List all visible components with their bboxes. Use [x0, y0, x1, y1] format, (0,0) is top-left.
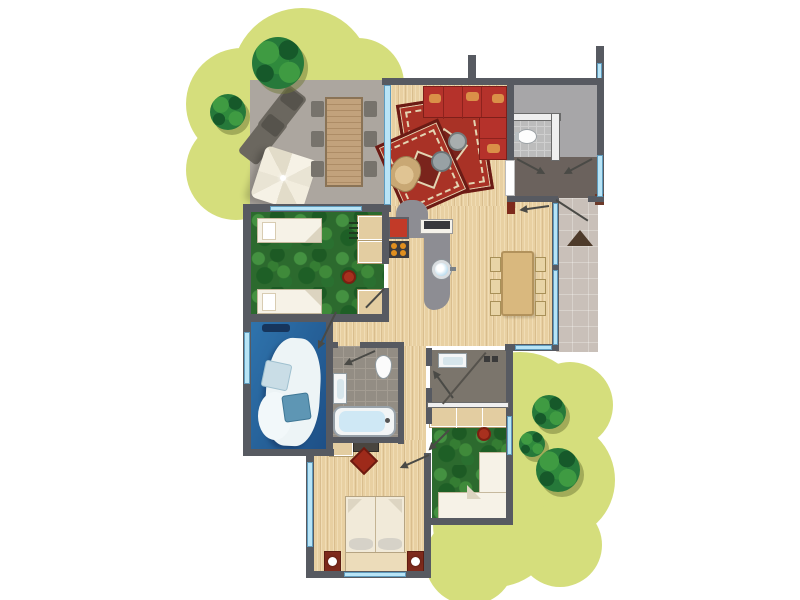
window	[553, 203, 558, 265]
sofa-seam	[462, 87, 463, 119]
wall-bathroom2-south	[428, 403, 508, 407]
window	[553, 270, 558, 345]
kitchen-dark-bar	[424, 221, 450, 229]
garden-chair	[364, 101, 377, 117]
duvet-fold	[388, 499, 402, 513]
dining-chair	[490, 279, 501, 294]
sofa-cushion-highlight	[492, 94, 504, 103]
tree	[210, 94, 246, 130]
round-side-table	[448, 132, 467, 151]
kitchen-sink	[431, 259, 452, 280]
duvet-fold	[305, 290, 321, 306]
wall-bathroom2-west	[426, 348, 432, 366]
lamp	[411, 557, 420, 566]
bathtub	[333, 406, 396, 437]
burner	[391, 250, 397, 256]
wall-bedroom1-east	[382, 288, 389, 321]
single-bed	[257, 218, 322, 243]
pillow	[262, 222, 276, 240]
wall-hall-west	[507, 83, 514, 161]
burner	[391, 243, 397, 249]
red-stool	[342, 270, 356, 284]
dining-chair	[535, 279, 546, 294]
sofa-cushion-highlight	[429, 94, 441, 103]
basin-bowl	[337, 379, 344, 399]
window	[244, 332, 250, 384]
wall-bedroom1-south	[243, 314, 389, 322]
wall-hall-south	[507, 196, 558, 202]
wall-bathroom1-east	[398, 342, 404, 444]
burner	[400, 243, 406, 249]
toilet-tank	[515, 132, 519, 141]
sofa-main	[423, 86, 507, 118]
garden-blob	[518, 503, 602, 587]
wall-top	[382, 78, 604, 85]
window	[270, 206, 362, 211]
pillow	[378, 538, 402, 550]
window-terrace-doors	[384, 85, 391, 205]
window	[597, 155, 603, 197]
shower-control	[492, 356, 498, 362]
kitchen-red-appliance	[388, 217, 409, 239]
window	[515, 345, 552, 350]
sofa-cushion-highlight	[487, 144, 500, 153]
window	[597, 63, 602, 79]
headboard	[262, 324, 290, 332]
window	[307, 462, 313, 547]
sink-bowl	[435, 263, 448, 276]
floor-plan-canvas	[0, 0, 800, 600]
round-side-table	[431, 151, 452, 172]
bathtub-drain	[385, 418, 390, 423]
wardrobe-row	[430, 406, 508, 427]
wardrobe-divider	[456, 407, 457, 428]
dining-chair	[535, 301, 546, 316]
tree	[252, 37, 304, 89]
parasol-pole	[280, 175, 286, 181]
wardrobe-divider	[482, 407, 483, 428]
dining-chair	[535, 257, 546, 272]
door-opening	[505, 160, 515, 196]
garden-chair	[311, 161, 324, 177]
burner	[400, 250, 406, 256]
window	[507, 416, 512, 455]
wall-bedroom1-east	[382, 204, 389, 264]
wall-stub	[468, 55, 476, 79]
entrance-marker-triangle	[567, 230, 593, 246]
garden-chair	[311, 131, 324, 147]
corner-bed-horizontal	[438, 492, 510, 521]
shower-head	[484, 356, 490, 362]
wall-bedroom4-east	[424, 453, 431, 578]
ladder	[349, 222, 358, 242]
washbasin	[333, 373, 347, 404]
wall-bedroom2-south	[243, 449, 334, 456]
window	[344, 572, 406, 577]
hob	[388, 241, 409, 258]
garden-chair	[364, 161, 377, 177]
garden-chair	[311, 101, 324, 117]
wc-partition-wall	[552, 114, 559, 160]
tree	[532, 395, 566, 429]
sink-tap	[450, 267, 456, 271]
pillow	[260, 359, 292, 391]
wardrobe	[358, 241, 385, 263]
sofa-chaise	[479, 117, 507, 160]
wall-bathroom1-south	[326, 437, 404, 443]
garden-chair	[364, 131, 377, 147]
single-bed	[257, 289, 322, 314]
garden-table	[325, 97, 363, 187]
sofa-seam	[480, 138, 508, 139]
tree	[536, 448, 580, 492]
sofa-cushion-highlight	[466, 92, 479, 101]
sofa-seam	[481, 87, 482, 119]
tree	[519, 431, 545, 457]
dining-chair	[490, 257, 501, 272]
washbasin	[438, 353, 467, 368]
garden-blob	[425, 515, 515, 600]
red-stool	[477, 427, 491, 441]
wardrobe	[358, 216, 385, 240]
duvet-fold	[348, 499, 362, 513]
double-bed	[345, 496, 405, 574]
pillow	[262, 293, 276, 311]
wall-bathroom1-north	[326, 342, 338, 348]
pillow	[281, 392, 311, 422]
pillow	[349, 538, 373, 550]
wall-bedroom1-west	[243, 204, 251, 323]
bathtub-water	[339, 411, 385, 432]
wall-bedroom3-south	[426, 518, 513, 525]
entrance-path	[556, 198, 598, 352]
basin-bowl	[443, 357, 463, 365]
sofa-seam	[443, 87, 444, 119]
duvet-fold	[305, 226, 321, 242]
lamp	[328, 557, 337, 566]
toilet	[517, 129, 537, 144]
dining-table	[501, 251, 534, 316]
dining-chair	[490, 301, 501, 316]
duvet-fold	[467, 485, 481, 499]
